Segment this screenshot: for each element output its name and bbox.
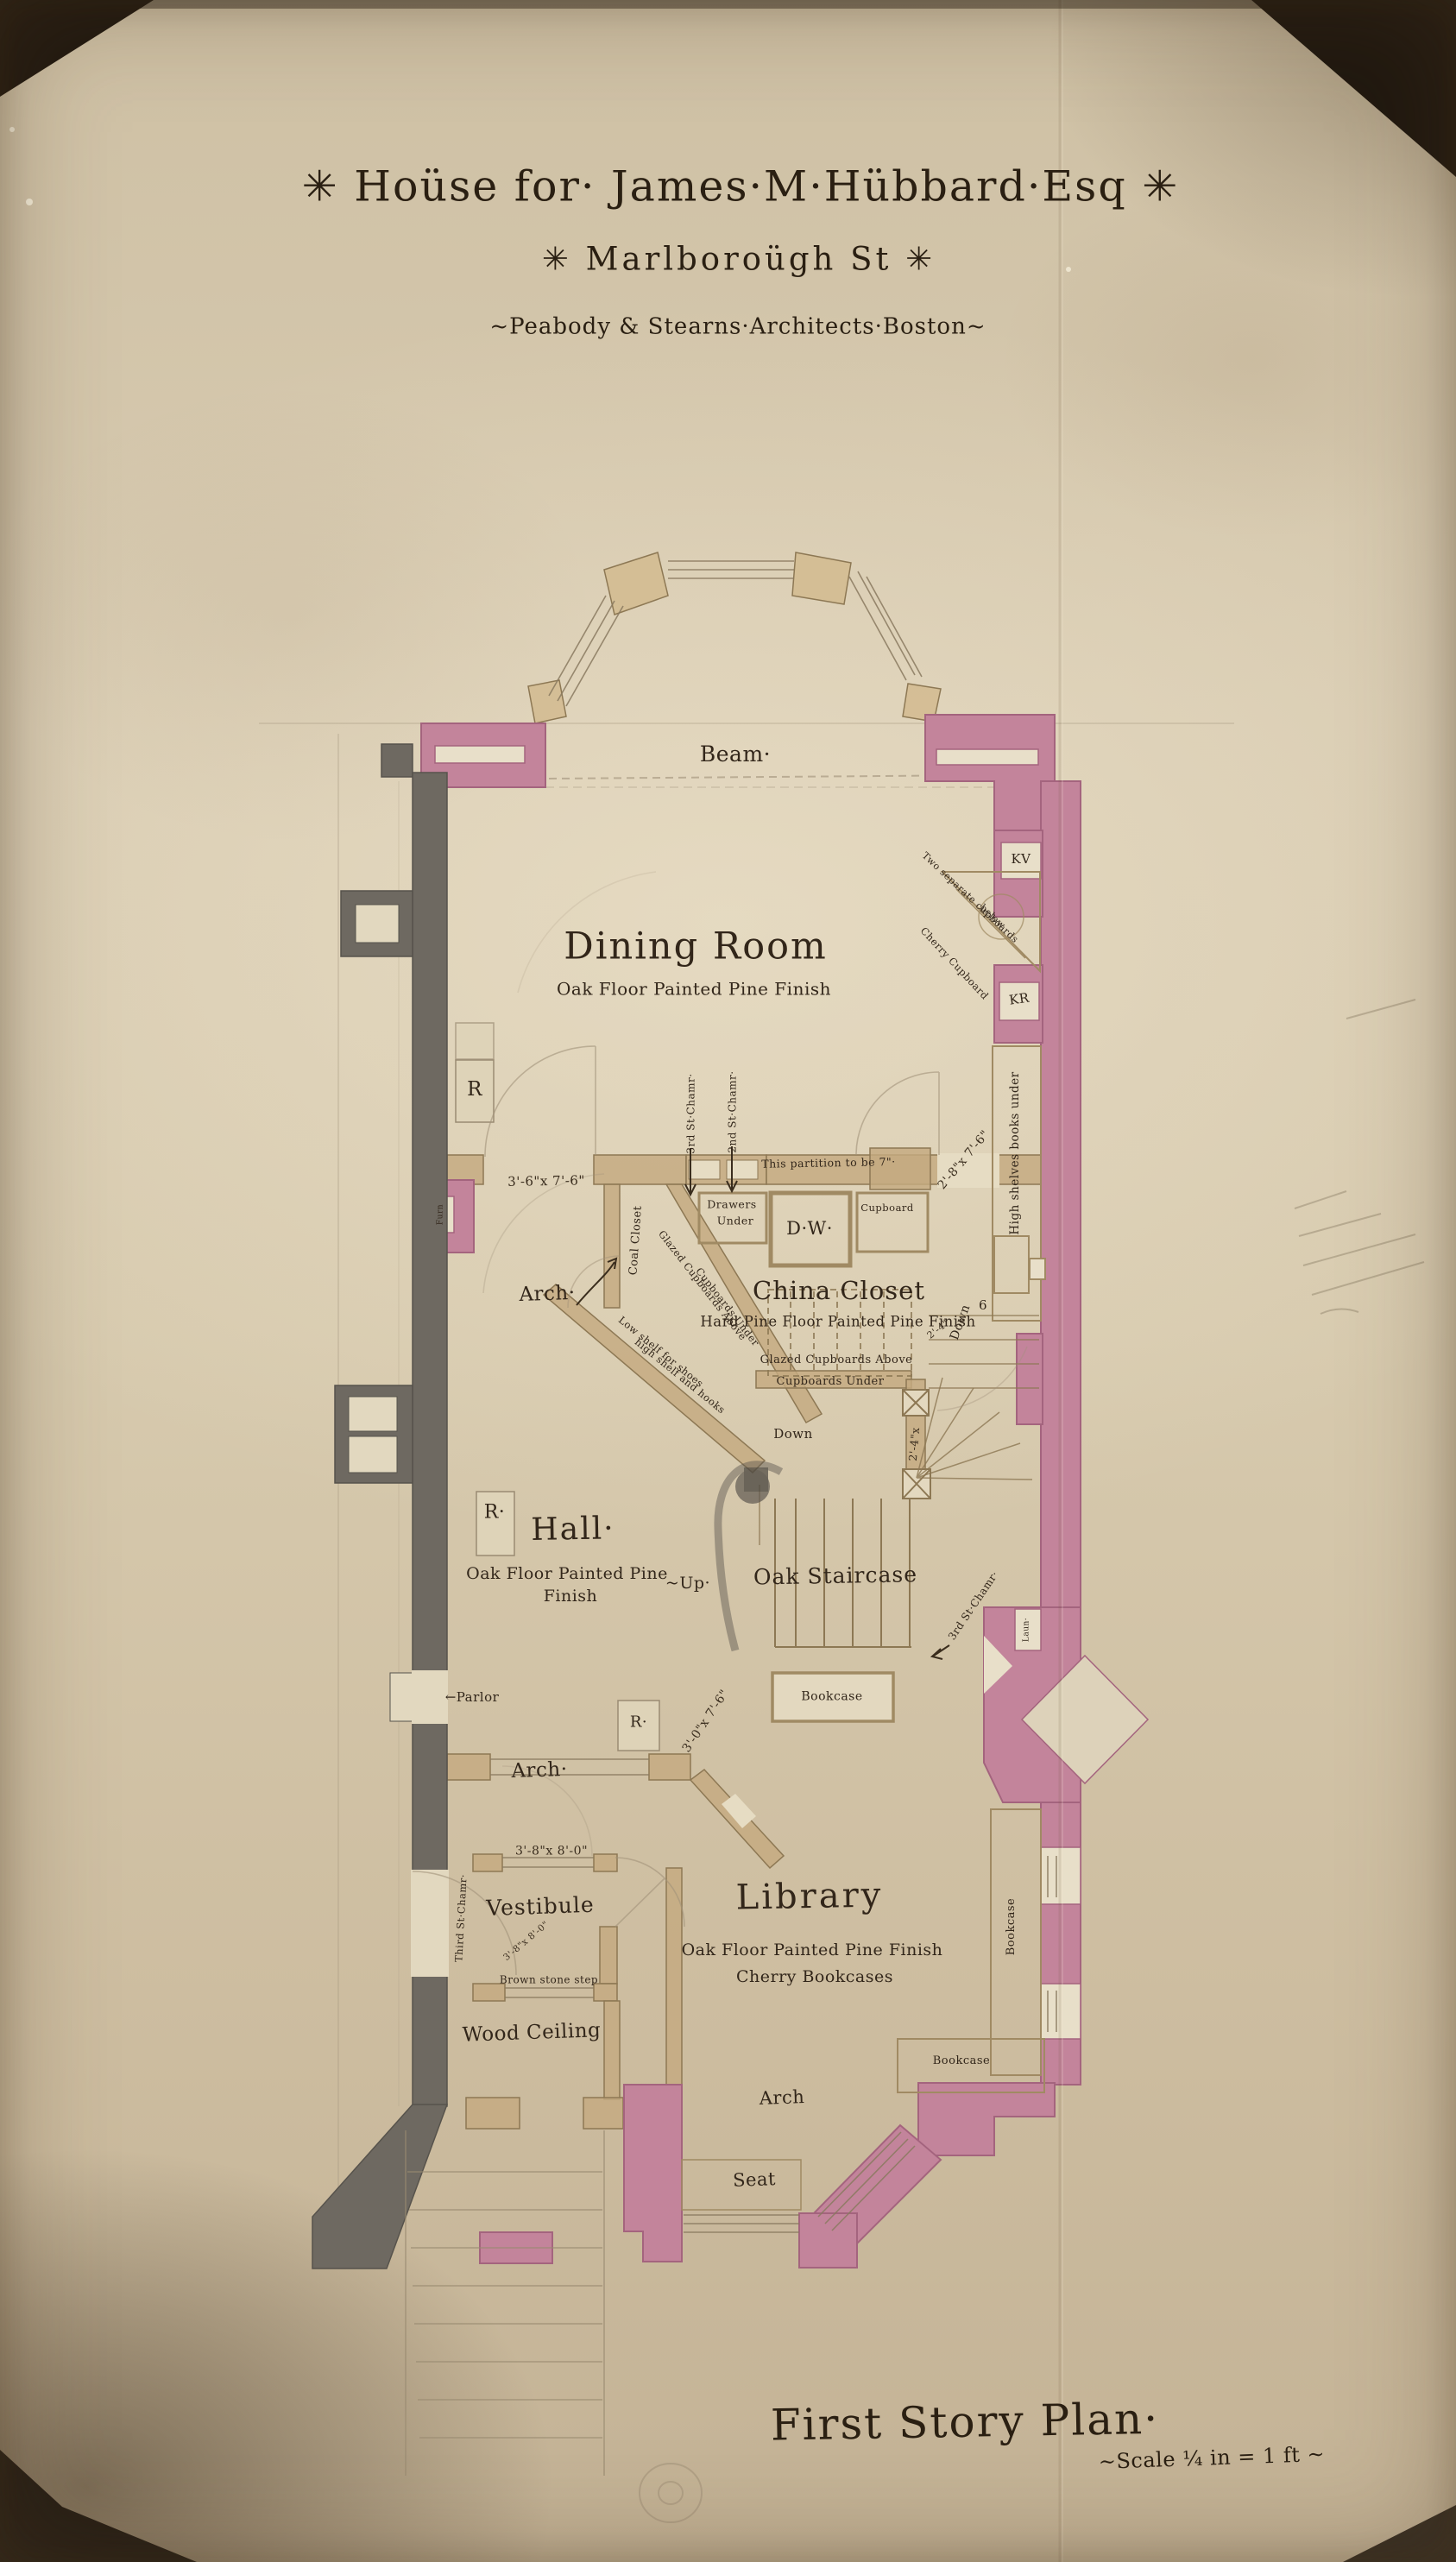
dumbwaiter-label: D·W· <box>786 1219 833 1238</box>
small-flue <box>1030 1259 1045 1279</box>
room-hall-name: Hall· <box>531 1512 615 1546</box>
paper-crease <box>1060 0 1062 2562</box>
vestibule-entry-opening <box>411 1870 449 1977</box>
oak-staircase-label: Oak Staircase <box>753 1563 917 1589</box>
room-dining-name: Dining Room <box>564 927 828 966</box>
dim-3-6-door: 3'-6"x 7'-6" <box>507 1174 585 1189</box>
kv-flue-label: KV <box>1011 853 1031 867</box>
partition-note-label: This partition to be 7"· <box>761 1156 896 1170</box>
room-library-bookcases: Cherry Bookcases <box>736 1969 893 1986</box>
room-library-finish: Oak Floor Painted Pine Finish <box>682 1942 943 1959</box>
drawing-photo: ✳ Hoüse for· James·M·Hübbard·Esq ✳ ✳ Mar… <box>0 0 1456 2562</box>
pencil-scribbles <box>1295 1000 1424 1314</box>
registers <box>456 1023 659 1751</box>
down-label: Down <box>773 1428 813 1442</box>
high-shelves-label: High shelves books under <box>1009 1071 1021 1234</box>
title-line-2: ✳ Marlboroügh St ✳ <box>542 243 936 277</box>
dining-register-label: R <box>467 1079 482 1100</box>
library-bookcase-right-label: Bookcase <box>1005 1898 1018 1955</box>
room-hall-finish-2: Finish <box>544 1588 598 1606</box>
beam-label: Beam· <box>700 743 771 766</box>
room-dining-finish: Oak Floor Painted Pine Finish <box>557 981 831 999</box>
title-line-3: ~Peabody & Stearns·Architects·Boston~ <box>489 315 986 338</box>
seat-label: Seat <box>733 2169 777 2190</box>
chamber-flue-arrow <box>932 1645 949 1659</box>
stairs <box>760 1290 1039 1647</box>
third-story-chamber-flue-label: 3rd St·Chamr· <box>686 1073 697 1153</box>
second-story-chamber-flue-label: 2nd St·Chamr· <box>728 1070 739 1152</box>
parlor-label: ←Parlor <box>445 1691 500 1705</box>
down-count-label: 6 <box>979 1299 987 1313</box>
plan-title: First Story Plan· <box>770 2396 1159 2448</box>
floor-plan-drawing <box>0 0 1456 2562</box>
room-china-name: China Closet <box>753 1278 925 1303</box>
room-hall-finish-1: Oak Floor Painted Pine <box>466 1566 668 1583</box>
parlor-door-opening <box>412 1670 448 1724</box>
cupboards-under-horiz-label: Cupboards Under <box>777 1376 885 1388</box>
drawers-under-label: Under <box>717 1215 753 1226</box>
up-label: ~Up· <box>665 1575 710 1593</box>
glazed-cupboards-horiz-label: Glazed Cupboards Above <box>760 1354 913 1366</box>
partition-openings <box>689 1153 999 1828</box>
room-library-name: Library <box>735 1877 883 1916</box>
kr-flue-label: KR <box>1008 992 1030 1008</box>
room-vestibule-name: Vestibule <box>486 1894 595 1921</box>
arch-label-library: Arch· <box>511 1759 568 1782</box>
dim-3-8-door-top: 3'-8"x 8'-0" <box>515 1846 588 1858</box>
library-register-label: R· <box>630 1715 647 1732</box>
winder-treads <box>917 1378 1032 1480</box>
furnace-flue-label: Furn <box>437 1204 444 1225</box>
parlor-door-jamb <box>390 1673 414 1721</box>
dim-2-4-vertical: 2'-4"x <box>907 1427 922 1461</box>
library-bookcase-bottom-label: Bookcase <box>933 2055 990 2067</box>
brown-stone-step-label: Brown stone step <box>500 1975 598 1986</box>
laundry-flue-label: Laun· <box>1023 1618 1031 1642</box>
arch-label-bay: Arch <box>759 2087 804 2108</box>
wall-cupboard <box>994 1236 1029 1293</box>
hall-bookcase-label: Bookcase <box>801 1691 862 1704</box>
drawers-label: Drawers <box>707 1198 756 1209</box>
title-line-1: ✳ Hoüse for· James·M·Hübbard·Esq ✳ <box>302 164 1180 208</box>
cupboard-label: Cupboard <box>860 1202 914 1213</box>
hall-register-label: R· <box>484 1502 506 1522</box>
stair-newel-sweep <box>718 1465 781 1650</box>
arch-label-upper: Arch· <box>519 1283 576 1305</box>
wood-ceiling-label: Wood Ceiling <box>462 2020 601 2046</box>
party-wall <box>312 744 447 2269</box>
